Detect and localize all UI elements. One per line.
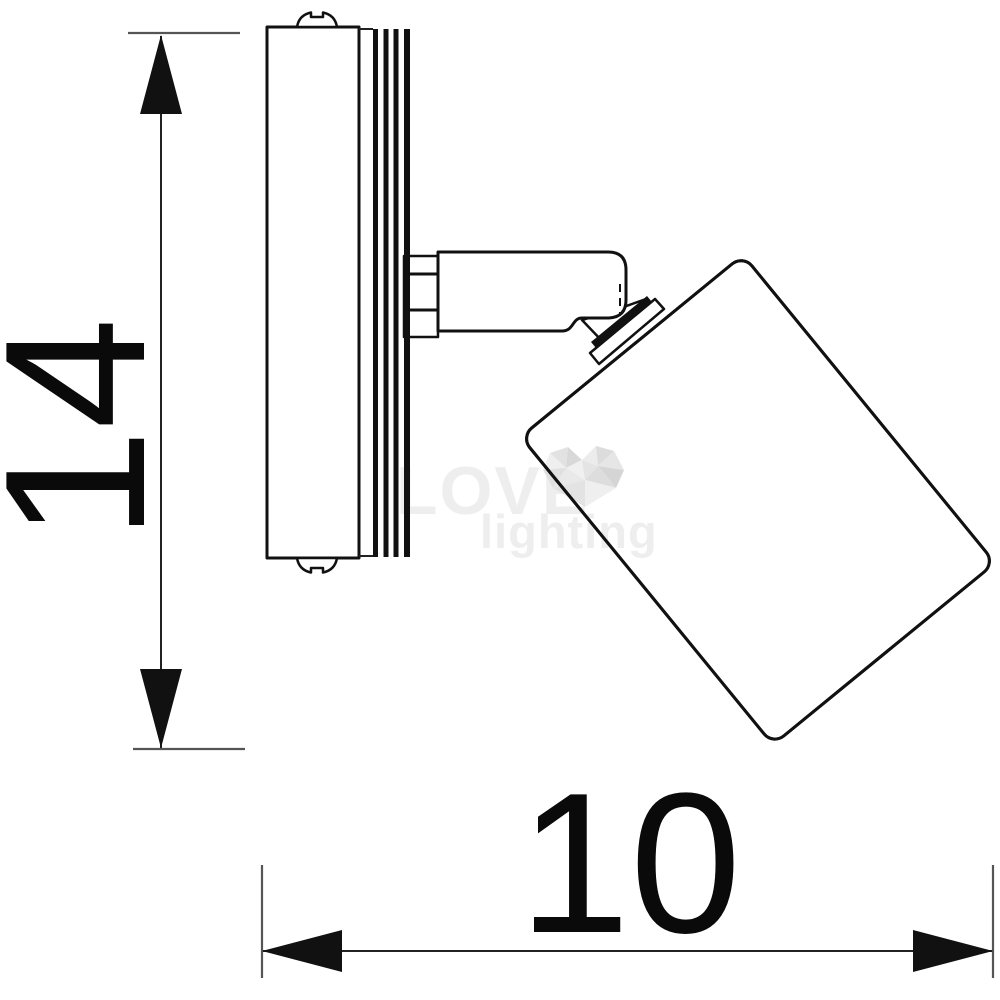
height-dimension: 14 xyxy=(0,33,245,749)
width-dimension: 10 xyxy=(262,752,993,978)
left-arrowhead-icon xyxy=(262,930,342,972)
fin xyxy=(373,29,378,557)
width-dimension-label: 10 xyxy=(519,752,741,975)
up-arrowhead-icon xyxy=(140,35,182,114)
wall-plate xyxy=(267,13,373,573)
technical-drawing-page: 14 10 LOVE lighting xyxy=(0,0,1000,1000)
height-dimension-label: 14 xyxy=(0,318,187,540)
fin xyxy=(404,29,410,557)
top-screw-icon xyxy=(297,13,337,28)
technical-drawing-canvas: 14 10 LOVE lighting xyxy=(0,0,1000,1000)
wall-plate-face xyxy=(267,27,359,558)
watermark-lighting-text: lighting xyxy=(480,505,658,558)
fin xyxy=(384,29,389,557)
down-arrowhead-icon xyxy=(140,669,182,748)
arm-body xyxy=(438,252,626,331)
right-arrowhead-icon xyxy=(913,930,993,972)
mounting-arm xyxy=(438,252,626,331)
fin xyxy=(394,29,399,557)
bottom-screw-icon xyxy=(297,558,337,573)
